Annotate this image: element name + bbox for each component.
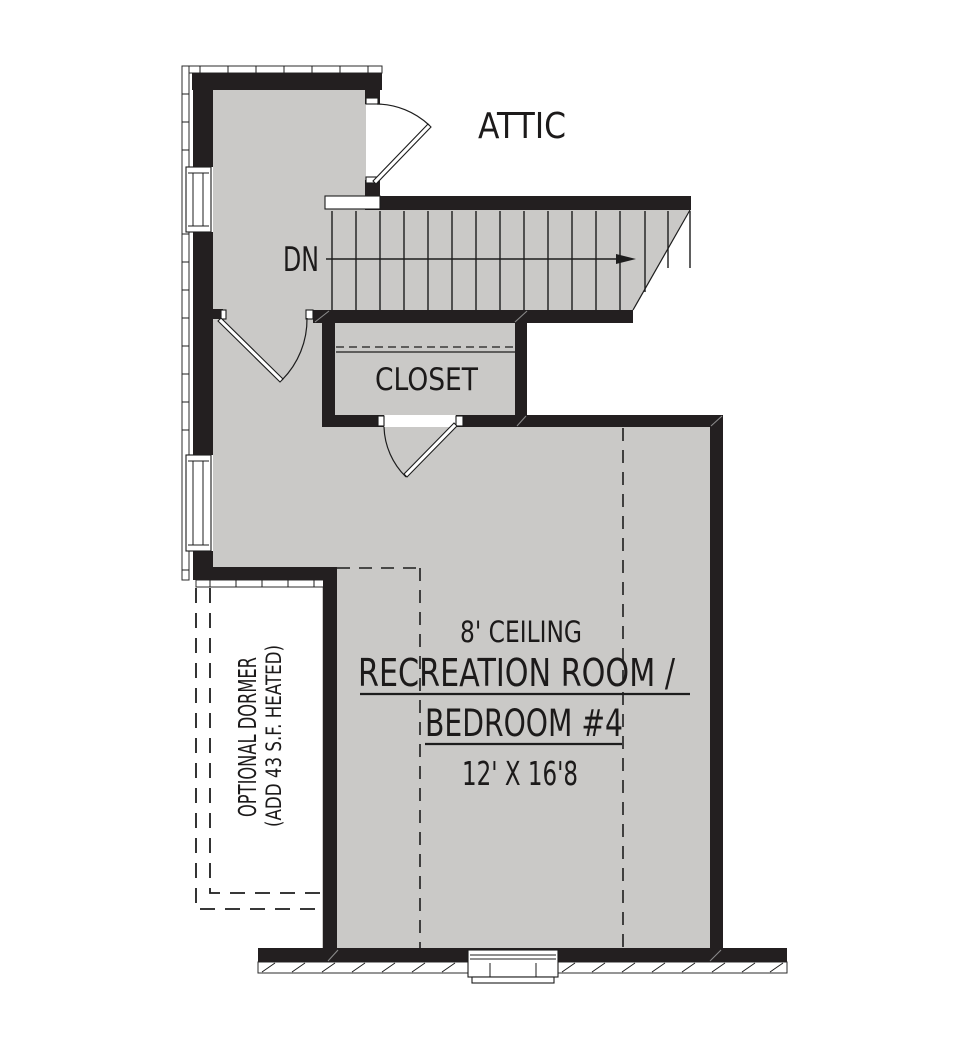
wall-recreation-top [456, 415, 723, 427]
attic-door-swing [377, 104, 429, 125]
dormer-note-line2: (ADD 43 S.F. HEATED) [262, 645, 286, 827]
window-bottom [468, 950, 558, 983]
wall-dormer-step [196, 567, 335, 580]
window-left-lower [186, 455, 211, 551]
room-name-line1: RECREATION ROOM / [358, 651, 675, 695]
west-corridor-floor [213, 310, 337, 567]
wall-top [192, 73, 382, 90]
floor-plan-svg: ATTIC DN CLOSET 8' CEILING RECREATION RO… [0, 0, 980, 1060]
attic-door-leaf [373, 124, 431, 184]
wall-recreation-left [323, 567, 337, 950]
wall-stair-top [378, 196, 691, 210]
room-ceiling-label: 8' CEILING [460, 615, 582, 649]
closet-label: CLOSET [375, 362, 479, 398]
wall-closet-left [322, 310, 335, 427]
wall-left-upper [193, 73, 213, 167]
stair-landing-header [325, 196, 380, 209]
wall-stair-bottom [313, 310, 633, 323]
wall-left-middle [193, 232, 213, 455]
stairs-dn-label: DN [283, 240, 319, 280]
room-name-line2: BEDROOM #4 [425, 702, 623, 745]
floor-plan-page: ATTIC DN CLOSET 8' CEILING RECREATION RO… [0, 0, 980, 1060]
window-left-upper [186, 167, 211, 232]
floor-areas [213, 88, 712, 948]
dormer-note-line1: OPTIONAL DORMER [233, 657, 262, 817]
siding-trim-top [188, 66, 382, 73]
wall-recreation-right [710, 415, 723, 950]
siding-trim-dormer-step [196, 580, 332, 587]
wall-closet-right [515, 323, 527, 415]
room-dimensions-label: 12' X 16'8 [462, 754, 578, 793]
attic-door [366, 98, 431, 184]
wall-closet-bottom-left [322, 415, 384, 427]
attic-label: ATTIC [478, 106, 566, 147]
